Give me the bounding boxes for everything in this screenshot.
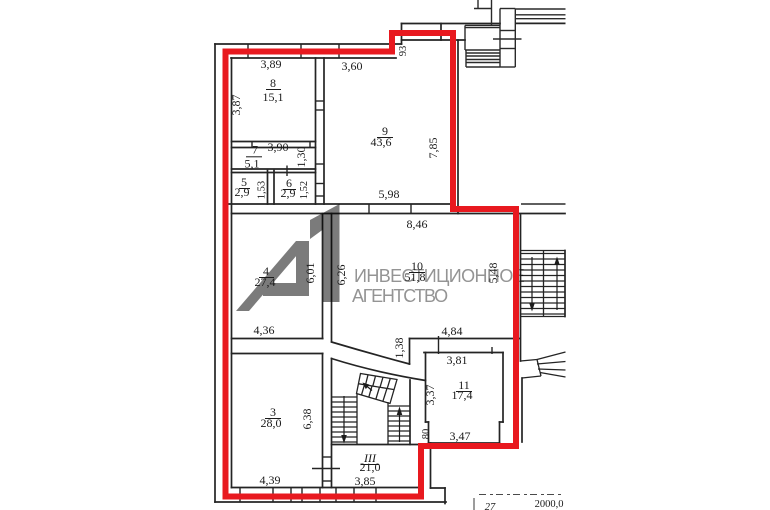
svg-text:5,98: 5,98 (379, 187, 400, 201)
svg-text:1,38: 1,38 (392, 338, 406, 359)
svg-text:1,52: 1,52 (299, 181, 310, 199)
svg-text:АГЕНТСТВО: АГЕНТСТВО (352, 286, 448, 306)
svg-text:3,87: 3,87 (229, 95, 243, 116)
svg-text:2000,0: 2000,0 (535, 499, 564, 510)
svg-text:2,9: 2,9 (235, 185, 250, 199)
svg-text:4,36: 4,36 (254, 323, 275, 337)
svg-text:4,84: 4,84 (442, 324, 463, 338)
svg-text:2,9: 2,9 (281, 186, 296, 200)
svg-text:1,30: 1,30 (294, 147, 308, 168)
svg-text:5,48: 5,48 (486, 263, 500, 284)
svg-text:3,85: 3,85 (355, 474, 376, 488)
svg-text:7,85: 7,85 (426, 138, 440, 159)
svg-text:4,39: 4,39 (260, 473, 281, 487)
svg-text:3,47: 3,47 (450, 429, 471, 443)
svg-text:6,38: 6,38 (300, 409, 314, 430)
svg-text:3,37: 3,37 (423, 385, 437, 406)
svg-text:1,53: 1,53 (257, 181, 268, 199)
svg-text:3,89: 3,89 (261, 57, 282, 71)
svg-text:3,81: 3,81 (447, 353, 468, 367)
svg-text:17,4: 17,4 (452, 388, 473, 402)
svg-text:8,46: 8,46 (407, 217, 428, 231)
svg-text:21,0: 21,0 (360, 460, 381, 474)
svg-text:15,1: 15,1 (263, 90, 284, 104)
svg-text:27: 27 (485, 502, 496, 510)
svg-text:93: 93 (398, 46, 409, 57)
svg-text:3,90: 3,90 (268, 140, 289, 154)
svg-text:8: 8 (270, 76, 276, 90)
svg-text:6,01: 6,01 (303, 263, 317, 284)
svg-text:7: 7 (252, 143, 258, 157)
svg-text:3,60: 3,60 (342, 59, 363, 73)
svg-text:6,26: 6,26 (334, 265, 348, 286)
svg-text:5,1: 5,1 (245, 157, 260, 171)
svg-text:80: 80 (421, 429, 432, 440)
